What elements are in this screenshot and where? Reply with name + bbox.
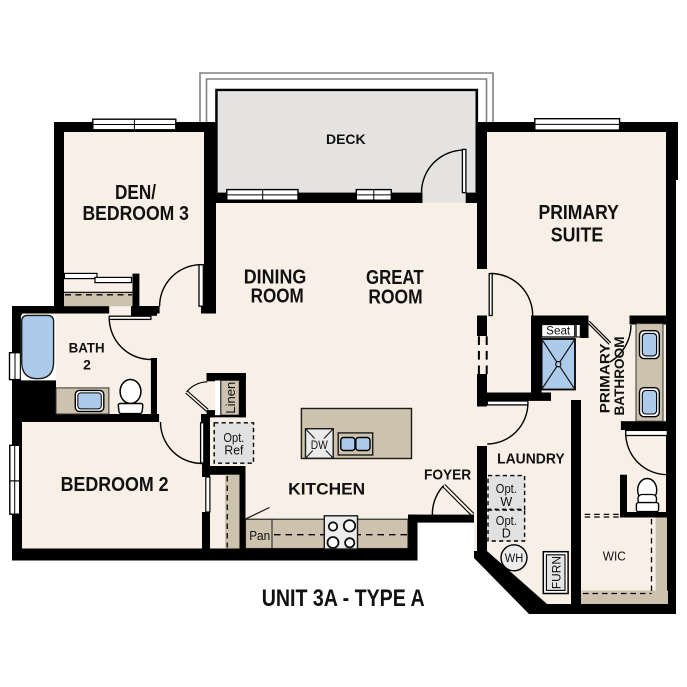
svg-text:WIC: WIC: [603, 549, 626, 563]
svg-text:ROOM: ROOM: [368, 286, 422, 308]
svg-text:KITCHEN: KITCHEN: [288, 479, 365, 498]
svg-text:FOYER: FOYER: [424, 467, 471, 484]
svg-text:W: W: [500, 495, 512, 509]
svg-text:UNIT 3A - TYPE A: UNIT 3A - TYPE A: [262, 585, 425, 612]
svg-text:DW: DW: [311, 438, 329, 452]
svg-text:DEN/: DEN/: [115, 182, 156, 204]
svg-text:Pan: Pan: [249, 529, 270, 543]
svg-text:FURN: FURN: [549, 556, 563, 589]
svg-text:PRIMARY: PRIMARY: [539, 202, 620, 224]
svg-text:BATHROOM: BATHROOM: [612, 336, 627, 415]
svg-text:D: D: [502, 527, 511, 541]
svg-text:Seat: Seat: [546, 326, 571, 338]
svg-text:2: 2: [83, 357, 91, 373]
svg-text:SUITE: SUITE: [551, 225, 603, 247]
svg-text:Opt.: Opt.: [496, 482, 517, 496]
svg-text:PRIMARY: PRIMARY: [598, 344, 613, 414]
svg-text:Linen: Linen: [224, 382, 238, 414]
svg-text:Ref: Ref: [224, 444, 244, 458]
svg-text:BEDROOM 2: BEDROOM 2: [61, 474, 169, 496]
svg-text:BATH: BATH: [69, 340, 105, 356]
svg-text:DECK: DECK: [326, 131, 366, 147]
svg-text:WH: WH: [505, 553, 524, 565]
svg-text:BEDROOM 3: BEDROOM 3: [82, 203, 189, 225]
svg-text:LAUNDRY: LAUNDRY: [497, 450, 565, 467]
svg-text:ROOM: ROOM: [251, 286, 304, 308]
